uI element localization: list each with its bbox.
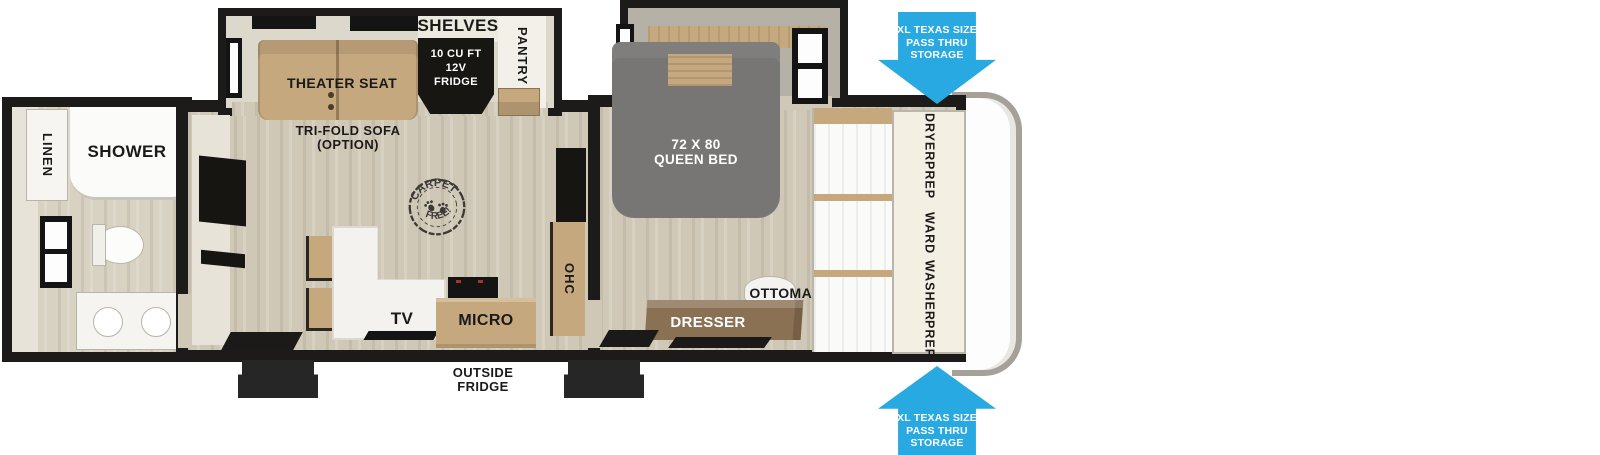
linen-cabinet: LINEN: [26, 109, 68, 201]
fridge-label-line1: 10 CU FT: [418, 48, 494, 62]
ohc-label: OHC: [553, 222, 585, 336]
theater-seat-label: THEATER SEAT: [262, 76, 422, 91]
sink-icon: [141, 307, 171, 337]
fridge-label-line3: FRIDGE: [418, 76, 494, 90]
ward-label: WARD: [894, 200, 964, 266]
counter-stool: [306, 288, 335, 331]
dryer-prep-label: DRYERPREP: [894, 118, 964, 194]
cupholder-icon: [328, 92, 334, 98]
entry-step: [238, 360, 318, 398]
fridge: 10 CU FT 12V FRIDGE: [418, 38, 494, 114]
pantry-label: PANTRY: [498, 16, 546, 97]
toilet-tank: [92, 224, 106, 266]
prep-panel: DRYERPREP WARD WASHERPREP: [892, 110, 966, 354]
slideout-side-window-icon: [226, 38, 242, 98]
vanity: [76, 292, 184, 350]
ohc-cabinet: OHC: [550, 222, 585, 336]
living-wall-face: [192, 115, 230, 345]
pantry-drawers: [498, 88, 540, 116]
dresser-label: DRESSER: [648, 315, 768, 331]
trifold-sofa-label: TRI-FOLD SOFA (OPTION): [278, 124, 418, 152]
bedroom-entry-mat: [599, 330, 659, 347]
slideout-window-icon: [252, 16, 316, 29]
tv-bar: [363, 331, 438, 340]
cupholder-icon: [328, 104, 334, 110]
queen-bed: 72 X 80 QUEEN BED: [612, 42, 780, 218]
bathroom-window-icon: [40, 216, 72, 288]
tv-panel: [199, 156, 246, 227]
entertainment-panel: [556, 148, 586, 222]
bed-pillow-shelf: [668, 54, 732, 86]
tv-label: TV: [380, 310, 424, 328]
entry-mat: [221, 332, 303, 350]
entry-step: [564, 360, 644, 398]
floorplan: LINEN SHOWER THEATER SEAT SHELVES: [0, 0, 1600, 455]
washer-prep-label: WASHERPREP: [894, 268, 964, 350]
carpet-free-stamp: CARPET FREE!: [403, 173, 472, 242]
pass-thru-arrow-down: XL TEXAS SIZE PASS THRU STORAGE: [878, 12, 996, 104]
bedroom-door-opening: [586, 300, 602, 348]
wardrobe: [812, 108, 892, 352]
queen-bed-label: 72 X 80 QUEEN BED: [612, 138, 780, 167]
shower-label: SHOWER: [74, 143, 180, 161]
shelves-label: SHELVES: [408, 17, 508, 35]
sink-icon: [93, 307, 123, 337]
bedroom-rug: [668, 337, 772, 348]
linen-label: LINEN: [27, 110, 67, 200]
bedroom-window-icon: [792, 28, 828, 104]
cooktop: [448, 277, 498, 300]
pass-thru-arrow-up: XL TEXAS SIZE PASS THRU STORAGE: [878, 366, 996, 455]
micro-label: MICRO: [440, 312, 532, 329]
pass-thru-top-label: XL TEXAS SIZE PASS THRU STORAGE: [892, 24, 982, 62]
counter-stool: [306, 236, 335, 281]
outside-fridge-label: OUTSIDE FRIDGE: [420, 366, 546, 394]
pass-thru-bottom-label: XL TEXAS SIZE PASS THRU STORAGE: [892, 412, 982, 450]
fridge-label-line2: 12V: [418, 62, 494, 76]
